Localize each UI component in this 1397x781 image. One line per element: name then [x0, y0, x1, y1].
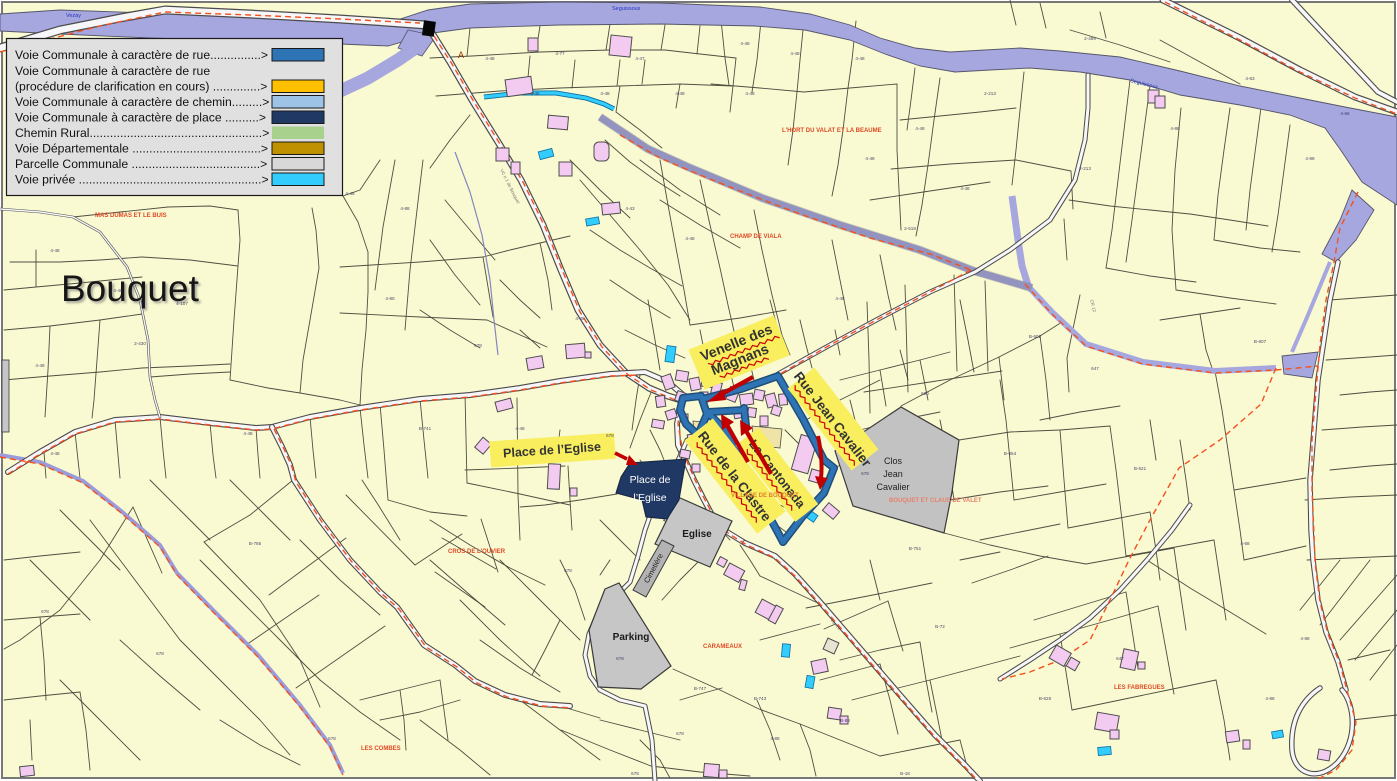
svg-text:4-48: 4-48	[600, 91, 610, 96]
svg-text:Eglise: Eglise	[682, 529, 712, 540]
svg-text:Jean: Jean	[883, 469, 903, 479]
svg-text:Cavalier: Cavalier	[876, 482, 909, 492]
svg-text:2-213: 2-213	[984, 91, 996, 96]
svg-text:LES COMBES: LES COMBES	[361, 746, 401, 752]
svg-text:(procédure de clarification en: (procédure de clarification en cours) ..…	[15, 80, 267, 94]
svg-text:4-48: 4-48	[835, 296, 845, 301]
svg-text:4-68: 4-68	[1240, 541, 1250, 546]
svg-text:4-48: 4-48	[790, 51, 800, 56]
svg-text:B-72: B-72	[935, 624, 945, 629]
svg-text:4-48: 4-48	[515, 426, 525, 431]
svg-text:Voie Communale à caractère de: Voie Communale à caractère de chemin....…	[15, 95, 269, 109]
svg-text:4-48: 4-48	[530, 91, 540, 96]
svg-text:B-747: B-747	[694, 686, 707, 691]
svg-text:678: 678	[606, 433, 614, 438]
svg-text:CHAMP DE VIALA: CHAMP DE VIALA	[730, 234, 782, 240]
svg-text:647: 647	[1116, 656, 1124, 661]
svg-text:678: 678	[616, 656, 624, 661]
svg-text:678: 678	[564, 568, 572, 573]
svg-text:Clos: Clos	[884, 456, 903, 466]
svg-text:Seguissous: Seguissous	[612, 6, 641, 12]
svg-text:678: 678	[41, 609, 49, 614]
svg-text:4-107: 4-107	[176, 301, 188, 306]
svg-text:2-430: 2-430	[134, 341, 146, 346]
svg-text:CARAMEAUX: CARAMEAUX	[703, 644, 742, 650]
svg-text:4-48: 4-48	[50, 451, 60, 456]
svg-text:Voie Communale à caractère de: Voie Communale à caractère de rue.......…	[15, 48, 268, 62]
svg-text:4-48: 4-48	[865, 156, 875, 161]
svg-text:678: 678	[156, 651, 164, 656]
svg-text:4-88: 4-88	[1265, 696, 1275, 701]
svg-text:2-213: 2-213	[1079, 166, 1091, 171]
svg-text:4-77: 4-77	[555, 51, 565, 56]
svg-text:678: 678	[861, 471, 869, 476]
svg-text:4-48: 4-48	[855, 56, 865, 61]
svg-text:4-88: 4-88	[770, 736, 780, 741]
svg-text:B-88: B-88	[840, 718, 850, 723]
svg-text:Chemin Rural..................: Chemin Rural............................…	[15, 126, 269, 140]
svg-text:A: A	[458, 50, 464, 60]
svg-text:BOUQUET ET CLAUS DE VALET: BOUQUET ET CLAUS DE VALET	[889, 498, 982, 504]
svg-text:4-48: 4-48	[50, 248, 60, 253]
svg-text:678: 678	[328, 736, 336, 741]
svg-text:4-88: 4-88	[1170, 126, 1180, 131]
svg-text:l’Eglise: l’Eglise	[633, 492, 666, 504]
svg-text:VILLAGE DE BOUQUET: VILLAGE DE BOUQUET	[731, 493, 799, 499]
svg-text:B-743: B-743	[754, 696, 767, 701]
svg-text:678: 678	[676, 731, 684, 736]
svg-text:4-80: 4-80	[385, 296, 395, 301]
svg-text:B-621: B-621	[1134, 466, 1147, 471]
svg-text:MAS DUMAS ET LE BUIS: MAS DUMAS ET LE BUIS	[95, 213, 167, 219]
svg-text:4-48: 4-48	[675, 91, 685, 96]
svg-text:Voie privée ..................: Voie privée ............................…	[15, 173, 269, 187]
svg-text:4-48: 4-48	[685, 236, 695, 241]
svg-text:620: 620	[921, 391, 929, 396]
svg-text:B-741: B-741	[419, 426, 432, 431]
svg-text:Parcelle Communale ...........: Parcelle Communale .....................…	[15, 157, 267, 171]
svg-text:B-626: B-626	[1039, 696, 1052, 701]
svg-text:L'HORT DU VALAT ET LA BEAUME: L'HORT DU VALAT ET LA BEAUME	[782, 128, 882, 134]
svg-text:4-48: 4-48	[243, 431, 253, 436]
svg-text:4-45: 4-45	[575, 316, 585, 321]
svg-text:4-48: 4-48	[960, 186, 970, 191]
svg-text:B-785: B-785	[249, 541, 262, 546]
svg-text:4-48: 4-48	[35, 363, 45, 368]
svg-text:678: 678	[474, 343, 482, 348]
svg-text:Parking: Parking	[613, 632, 650, 643]
svg-text:Place de: Place de	[630, 474, 671, 486]
svg-text:Vezay: Vezay	[66, 13, 81, 19]
svg-text:LES FABREGUES: LES FABREGUES	[1114, 685, 1165, 691]
svg-text:4-88: 4-88	[1305, 156, 1315, 161]
svg-text:4-48: 4-48	[345, 191, 355, 196]
svg-text:B-18: B-18	[900, 771, 910, 776]
svg-text:CROS DE L'OUVIER: CROS DE L'OUVIER	[448, 549, 506, 555]
svg-text:4-48: 4-48	[915, 126, 925, 131]
svg-text:4-88: 4-88	[1300, 636, 1310, 641]
svg-text:2-489: 2-489	[1084, 36, 1096, 41]
svg-text:B-602: B-602	[1029, 334, 1042, 339]
svg-text:4-63: 4-63	[1245, 76, 1255, 81]
svg-text:Voie Communale à caractère de: Voie Communale à caractère de rue	[15, 64, 210, 78]
svg-text:2-518: 2-518	[904, 226, 916, 231]
svg-text:4-43: 4-43	[625, 206, 635, 211]
svg-text:4-48: 4-48	[485, 56, 495, 61]
svg-text:4-88: 4-88	[400, 206, 410, 211]
svg-text:4-47: 4-47	[635, 56, 645, 61]
svg-text:4-48: 4-48	[740, 41, 750, 46]
svg-text:4-48: 4-48	[745, 91, 755, 96]
svg-text:B-654: B-654	[1004, 451, 1017, 456]
svg-text:4-48: 4-48	[113, 288, 123, 293]
svg-text:Voie Communale à caractère de: Voie Communale à caractère de place ....…	[15, 111, 266, 125]
svg-text:678: 678	[631, 771, 639, 776]
svg-text:4-66: 4-66	[1340, 111, 1350, 116]
svg-text:B-751: B-751	[909, 546, 922, 551]
svg-text:B-607: B-607	[1254, 339, 1267, 344]
svg-text:647: 647	[1091, 366, 1099, 371]
svg-text:Voie Départementale ..........: Voie Départementale ....................…	[15, 142, 268, 156]
